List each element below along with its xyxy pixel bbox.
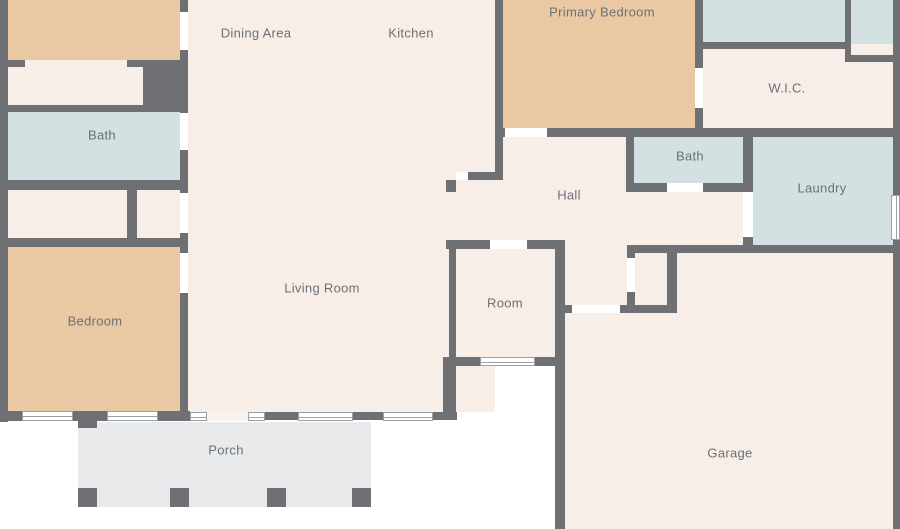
wall-kitchen-right xyxy=(495,0,503,180)
wall-dining-left-top xyxy=(180,0,188,12)
window-pane xyxy=(249,417,264,418)
label-porch: Porch xyxy=(208,443,243,458)
wall-hall-nook-stub xyxy=(446,180,456,192)
door-primary-bedroom xyxy=(505,128,547,137)
room-closet-garage-fill xyxy=(635,253,667,303)
label-garage: Garage xyxy=(707,446,752,461)
window-pane xyxy=(23,416,72,417)
wall-blue2-left xyxy=(845,0,851,62)
wall-laundry-left-b xyxy=(743,237,753,253)
wall-living-bottom-b xyxy=(353,412,383,420)
door-wic xyxy=(695,68,703,108)
door-garage xyxy=(572,305,620,313)
wall-room-garage-right xyxy=(555,240,565,529)
window-pane xyxy=(191,417,206,418)
wall-closet-garage-right xyxy=(667,250,677,308)
wall-bedroom-bottom-c xyxy=(158,411,190,421)
wall-bedroom-top xyxy=(0,238,188,247)
door-closet-garage xyxy=(627,258,635,292)
label-bath-left: Bath xyxy=(88,128,116,143)
window-pane xyxy=(384,417,432,418)
wall-bath-left-bottom xyxy=(0,180,183,190)
label-primary-bedroom: Primary Bedroom xyxy=(549,5,655,20)
wall-closet-divider xyxy=(127,188,137,240)
label-kitchen: Kitchen xyxy=(388,26,433,41)
wall-closet-top-b xyxy=(127,60,143,67)
window-pane xyxy=(299,417,352,418)
window-laundry xyxy=(891,195,900,240)
door-bath-hall xyxy=(667,183,703,192)
label-wic: W.I.C. xyxy=(768,81,805,96)
porch-post-3 xyxy=(267,488,286,507)
wall-primary-right-b xyxy=(695,108,703,137)
wall-closet-garage-left-b xyxy=(627,292,635,305)
room-garage-fill xyxy=(560,245,893,529)
label-bedroom: Bedroom xyxy=(68,314,123,329)
label-room: Room xyxy=(487,296,523,311)
label-hall: Hall xyxy=(557,188,581,203)
window-entry-sidelight-2 xyxy=(248,412,265,421)
wall-laundry-left-a xyxy=(743,128,753,192)
label-living-room: Living Room xyxy=(284,281,360,296)
room-bedroom-fill xyxy=(8,247,180,412)
room-bedroom-top-fill xyxy=(8,0,180,60)
room-closet-row-fill xyxy=(8,188,180,240)
wall-garage-door-stub xyxy=(562,305,572,313)
door-room xyxy=(490,240,527,249)
door-bedroomtop-dining xyxy=(180,12,188,50)
door-front-entry xyxy=(207,412,248,421)
wall-laundry-garage-bottom xyxy=(627,245,900,253)
wall-bedroom-bottom-a xyxy=(0,411,22,421)
wall-right-exterior xyxy=(893,0,900,529)
room-porch-fill xyxy=(78,422,371,507)
floorplan-canvas: Dining AreaKitchenPrimary BedroomW.I.C.B… xyxy=(0,0,900,529)
window-pane xyxy=(896,196,897,239)
window-bedroom-2 xyxy=(107,411,158,421)
wall-bath-hall-left xyxy=(626,128,634,190)
porch-post-2 xyxy=(170,488,189,507)
room-blue-top-1-fill xyxy=(703,0,845,44)
room-bath-left-fill xyxy=(8,112,180,180)
porch-post-1 xyxy=(78,488,97,507)
door-bath-left xyxy=(180,113,188,150)
wall-primary-bottom xyxy=(547,128,900,137)
label-laundry: Laundry xyxy=(797,181,846,196)
wall-room-top-a xyxy=(446,240,490,249)
window-pane xyxy=(108,416,157,417)
label-bath-hall: Bath xyxy=(676,149,704,164)
window-living-2 xyxy=(383,412,433,421)
wall-closet-top-a xyxy=(0,60,25,67)
door-hall-nook xyxy=(456,172,468,180)
door-bedroom xyxy=(180,253,188,293)
wall-primary-bottom-stub xyxy=(495,128,505,137)
door-closet-row xyxy=(180,193,188,233)
porch-post-4 xyxy=(352,488,371,507)
porch-post-top xyxy=(78,418,97,428)
wall-hall-nook xyxy=(468,172,503,180)
wall-living-right-lower xyxy=(443,357,456,420)
room-primary-bedroom-fill xyxy=(503,0,695,130)
wall-primary-right-a xyxy=(695,0,703,68)
room-closet-top-fill xyxy=(8,60,143,105)
wall-blue2-bottom xyxy=(845,55,900,62)
door-laundry xyxy=(743,192,753,237)
label-dining-area: Dining Area xyxy=(221,26,292,41)
wall-room-left xyxy=(449,240,456,366)
wall-bath-left-top xyxy=(0,105,182,112)
wall-blue1-bottom xyxy=(697,42,851,49)
window-pane xyxy=(481,362,534,363)
wall-bedroom-right xyxy=(180,293,188,412)
window-living-1 xyxy=(298,412,353,421)
wall-living-bottom-a xyxy=(265,412,298,420)
window-entry-sidelight-1 xyxy=(190,412,207,421)
window-bedroom-1 xyxy=(22,411,73,421)
window-room xyxy=(480,357,535,366)
wall-bath-hall-bottom-a xyxy=(626,183,667,192)
